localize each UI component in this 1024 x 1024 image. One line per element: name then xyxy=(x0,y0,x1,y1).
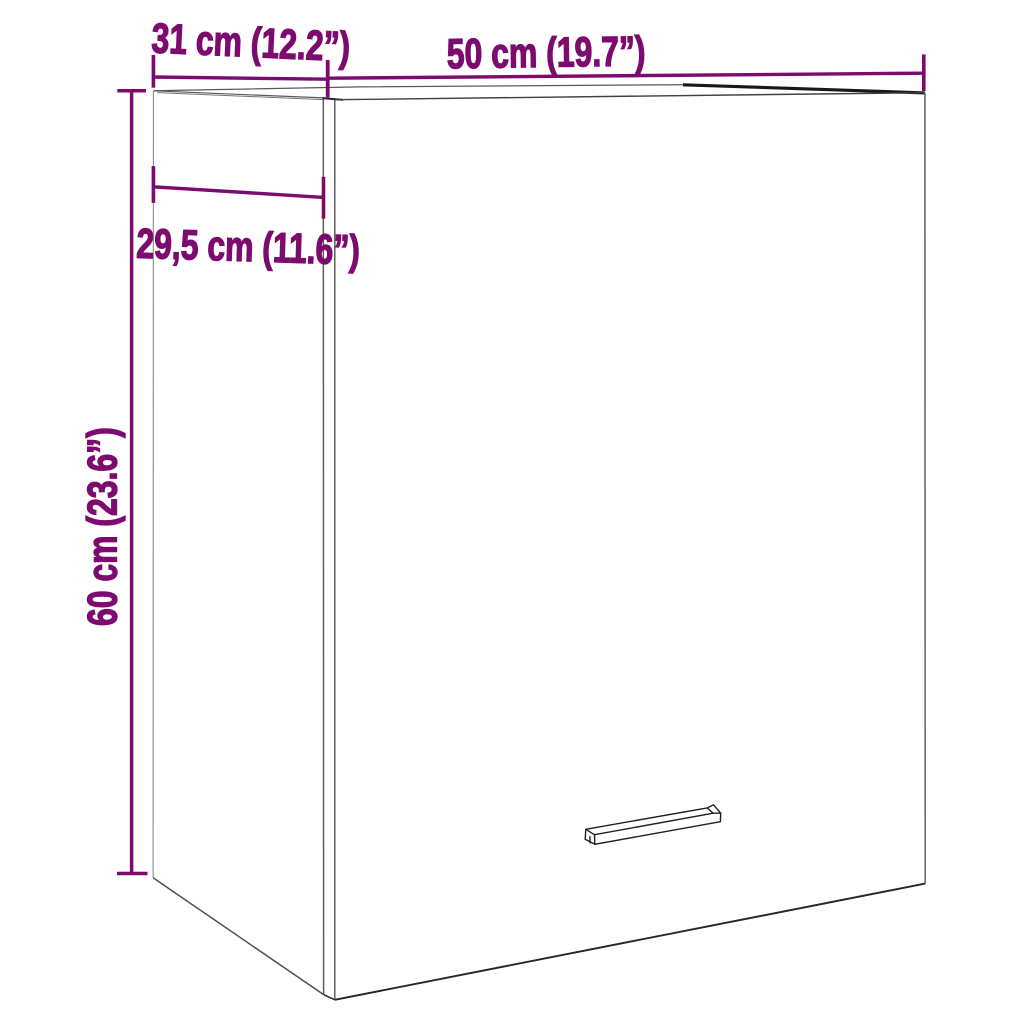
svg-text:60 cm (23.6”): 60 cm (23.6”) xyxy=(78,427,125,626)
svg-text:50 cm (19.7”): 50 cm (19.7”) xyxy=(446,27,645,77)
svg-text:31 cm (12.2”): 31 cm (12.2”) xyxy=(151,14,352,70)
svg-text:29,5 cm (11.6”): 29,5 cm (11.6”) xyxy=(136,219,361,273)
